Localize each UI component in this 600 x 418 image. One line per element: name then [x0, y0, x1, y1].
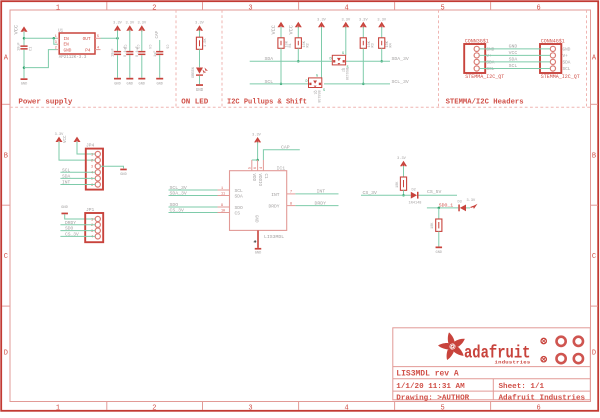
svg-text:3.3V: 3.3V: [113, 21, 122, 25]
svg-text:GND: GND: [64, 48, 72, 53]
svg-text:GND: GND: [254, 215, 258, 223]
svg-text:0.1uF: 0.1uF: [136, 46, 140, 57]
svg-text:VCC: VCC: [509, 50, 518, 56]
svg-text:SDA_3V: SDA_3V: [392, 56, 409, 62]
svg-text:C: C: [592, 253, 596, 261]
svg-text:SDO: SDO: [235, 205, 244, 211]
svg-text:1.0K: 1.0K: [204, 38, 208, 47]
svg-text:Adafruit Industries: Adafruit Industries: [499, 394, 586, 402]
svg-text:GND: GND: [255, 252, 261, 256]
svg-text:4: 4: [259, 167, 263, 169]
svg-text:9: 9: [221, 204, 223, 208]
svg-text:S: S: [323, 89, 325, 93]
svg-text:B: B: [592, 153, 596, 161]
svg-text:2: 2: [152, 404, 156, 412]
svg-text:7: 7: [290, 191, 292, 195]
svg-text:VDDIO: VDDIO: [257, 174, 261, 187]
svg-text:1N4148: 1N4148: [409, 202, 422, 206]
svg-text:SDA: SDA: [487, 61, 495, 66]
svg-text:GREEN: GREEN: [192, 67, 196, 78]
svg-text:1: 1: [91, 153, 93, 157]
svg-text:3.3V: 3.3V: [125, 21, 134, 25]
svg-text:R4: R4: [390, 43, 394, 47]
svg-text:6: 6: [536, 404, 540, 412]
svg-text:Sheet: 1/1: Sheet: 1/1: [499, 383, 545, 391]
svg-text:3: 3: [55, 41, 57, 45]
svg-text:GND: GND: [563, 48, 571, 53]
svg-text:C1: C1: [30, 47, 34, 51]
svg-text:ON LED: ON LED: [181, 98, 209, 106]
svg-text:LIS3MDL: LIS3MDL: [264, 234, 284, 240]
svg-text:VCC: VCC: [14, 25, 20, 35]
svg-text:JP4: JP4: [86, 143, 95, 149]
svg-text:CAP: CAP: [156, 30, 160, 38]
svg-text:1: 1: [221, 187, 223, 191]
svg-text:GND: GND: [487, 48, 495, 53]
svg-text:CAP: CAP: [281, 144, 290, 150]
svg-text:SCL: SCL: [509, 63, 518, 69]
svg-text:CS_5V: CS_5V: [427, 189, 442, 195]
svg-text:I2C Pullups & Shift: I2C Pullups & Shift: [227, 98, 307, 106]
svg-text:10K: 10K: [396, 181, 400, 188]
svg-text:D: D: [592, 350, 596, 358]
svg-text:3: 3: [91, 166, 93, 170]
svg-text:SCL: SCL: [487, 67, 495, 72]
svg-text:GND: GND: [156, 82, 162, 86]
svg-text:C1: C1: [263, 174, 267, 180]
svg-text:3: 3: [248, 404, 252, 412]
svg-text:1: 1: [91, 218, 93, 222]
svg-text:LIS3MDL rev A: LIS3MDL rev A: [396, 369, 459, 378]
svg-text:GND: GND: [61, 206, 69, 210]
svg-text:5: 5: [440, 5, 444, 13]
svg-text:4: 4: [344, 404, 348, 412]
svg-text:Q2: Q2: [341, 68, 345, 72]
svg-text:10: 10: [221, 209, 225, 213]
svg-text:2: 2: [91, 159, 93, 163]
svg-text:OUT: OUT: [83, 37, 91, 42]
svg-text:CS: CS: [235, 211, 241, 217]
svg-text:G: G: [316, 75, 318, 79]
svg-text:AP2112K-3.3: AP2112K-3.3: [59, 56, 87, 60]
svg-text:3.3V: 3.3V: [195, 21, 204, 25]
svg-text:BSS138: BSS138: [316, 91, 320, 103]
svg-text:GND: GND: [120, 173, 126, 177]
svg-text:DRDY: DRDY: [268, 204, 279, 210]
svg-text:Q1: Q1: [313, 91, 317, 95]
svg-text:C5: C5: [165, 45, 169, 49]
svg-text:D: D: [4, 350, 8, 358]
svg-text:4: 4: [97, 47, 99, 51]
svg-text:GND: GND: [509, 43, 518, 49]
svg-text:EN: EN: [64, 43, 70, 48]
svg-text:1: 1: [56, 404, 60, 412]
svg-text:VDD: VDD: [251, 174, 255, 182]
svg-text:3.3V: 3.3V: [252, 133, 261, 137]
svg-text:C4: C4: [147, 45, 151, 49]
svg-text:V+: V+: [487, 54, 493, 59]
svg-text:GND: GND: [139, 82, 145, 86]
svg-text:BSS138: BSS138: [344, 68, 348, 80]
svg-text:10K: 10K: [431, 222, 435, 229]
svg-text:6: 6: [253, 167, 257, 169]
svg-text:5: 5: [440, 404, 444, 412]
svg-text:D: D: [329, 58, 331, 62]
svg-text:Drawing: >AUTHOR: Drawing: >AUTHOR: [396, 394, 469, 402]
svg-text:2: 2: [55, 47, 57, 51]
svg-text:D: D: [305, 80, 307, 84]
svg-text:GND: GND: [114, 82, 120, 86]
svg-text:IN: IN: [64, 37, 70, 42]
svg-text:SCL: SCL: [235, 188, 244, 194]
svg-text:R2: R2: [306, 43, 310, 47]
svg-text:3.3V: 3.3V: [397, 157, 406, 161]
svg-text:SCL: SCL: [563, 67, 571, 72]
svg-text:10uF: 10uF: [18, 42, 22, 51]
svg-text:industries: industries: [495, 360, 531, 365]
svg-text:P4: P4: [85, 48, 91, 53]
svg-text:INT: INT: [271, 192, 280, 198]
svg-text:3.3V: 3.3V: [137, 21, 146, 25]
svg-text:SDA: SDA: [563, 61, 571, 66]
svg-text:SDA: SDA: [235, 194, 244, 200]
svg-text:SDA: SDA: [509, 56, 518, 62]
svg-text:R3: R3: [371, 43, 375, 47]
svg-text:SCL_3V: SCL_3V: [392, 79, 409, 85]
svg-text:2: 2: [152, 5, 156, 13]
svg-text:V+: V+: [563, 54, 569, 59]
svg-text:G: G: [342, 52, 344, 56]
svg-text:3.3V: 3.3V: [467, 199, 476, 203]
svg-text:R1: R1: [289, 43, 293, 47]
svg-text:8: 8: [290, 202, 292, 206]
svg-text:5: 5: [247, 167, 251, 169]
svg-text:VCC: VCC: [271, 25, 277, 34]
svg-text:3.3V: 3.3V: [317, 18, 326, 22]
svg-text:VCC: VCC: [64, 135, 68, 143]
svg-text:VCC: VCC: [288, 25, 294, 34]
svg-text:D3: D3: [458, 200, 462, 204]
svg-text:GND: GND: [127, 82, 133, 86]
svg-text:3.3V: 3.3V: [55, 133, 64, 137]
svg-text:STEMMA_I2C_QT: STEMMA_I2C_QT: [541, 74, 580, 80]
svg-text:D2: D2: [412, 189, 416, 193]
svg-text:STEMMA_I2C_QT: STEMMA_I2C_QT: [465, 74, 504, 80]
svg-text:GND: GND: [436, 251, 442, 255]
svg-text:0.1uF: 0.1uF: [124, 46, 128, 57]
svg-text:Power supply: Power supply: [18, 98, 73, 106]
svg-text:6: 6: [536, 5, 540, 13]
svg-text:1/1/20 11:31 AM: 1/1/20 11:31 AM: [396, 383, 465, 391]
svg-text:C: C: [4, 253, 8, 261]
svg-text:3.3V: 3.3V: [377, 18, 386, 22]
svg-text:11: 11: [221, 192, 225, 196]
svg-text:4: 4: [344, 5, 348, 13]
svg-text:3.3V: 3.3V: [341, 18, 350, 22]
svg-text:10uF: 10uF: [112, 48, 116, 57]
svg-text:3.3V: 3.3V: [359, 18, 368, 22]
svg-text:STEMMA/I2C Headers: STEMMA/I2C Headers: [446, 98, 524, 106]
svg-text:1uF: 1uF: [154, 51, 158, 57]
svg-text:1: 1: [56, 5, 60, 13]
svg-text:B: B: [4, 153, 8, 161]
svg-text:5: 5: [97, 35, 99, 39]
svg-text:GND: GND: [21, 82, 27, 86]
svg-text:1: 1: [55, 35, 57, 39]
svg-text:3: 3: [248, 5, 252, 13]
svg-text:GND: GND: [196, 89, 204, 93]
